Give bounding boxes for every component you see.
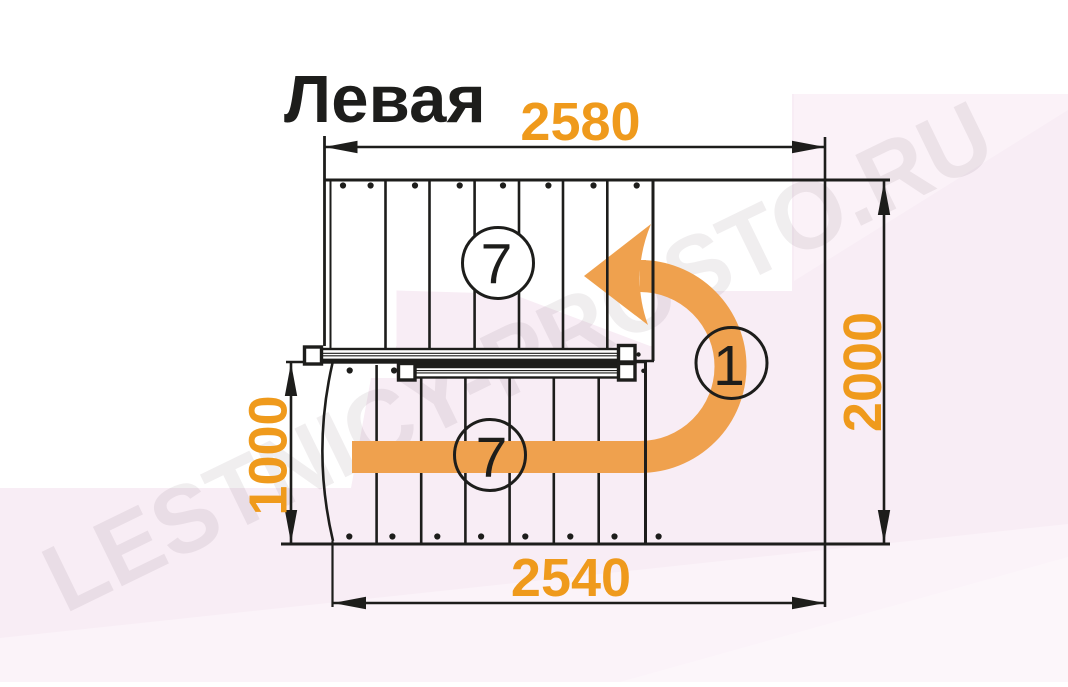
svg-text:1000: 1000 xyxy=(239,395,299,515)
svg-text:2000: 2000 xyxy=(833,312,893,432)
svg-text:Левая: Левая xyxy=(284,62,486,137)
svg-text:2540: 2540 xyxy=(511,548,631,608)
svg-text:7: 7 xyxy=(481,233,513,297)
svg-text:2580: 2580 xyxy=(520,92,640,152)
svg-text:1: 1 xyxy=(713,334,745,398)
svg-text:7: 7 xyxy=(476,426,508,490)
